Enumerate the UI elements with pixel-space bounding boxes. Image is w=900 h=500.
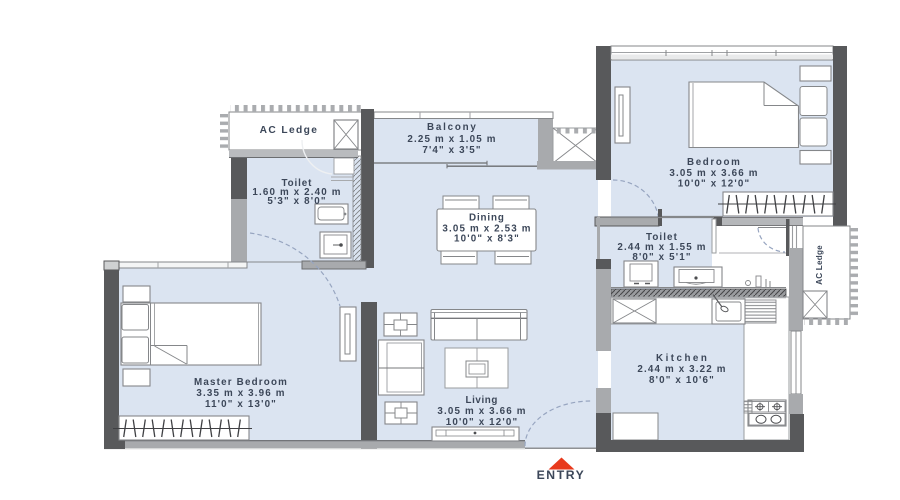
svg-text:Kitchen: Kitchen (656, 353, 708, 364)
svg-text:AC Ledge: AC Ledge (260, 125, 319, 136)
svg-text:5'3" x 8'0": 5'3" x 8'0" (267, 196, 326, 207)
svg-text:8'0" x 10'6": 8'0" x 10'6" (649, 375, 715, 386)
svg-text:3.35 m x 3.96 m: 3.35 m x 3.96 m (196, 388, 285, 399)
svg-text:7'4" x 3'5": 7'4" x 3'5" (422, 145, 481, 156)
svg-text:8'0" x 5'1": 8'0" x 5'1" (632, 252, 691, 263)
svg-text:Balcony: Balcony (427, 122, 477, 133)
svg-text:3.05 m x 3.66 m: 3.05 m x 3.66 m (669, 168, 758, 179)
svg-text:AC Ledge: AC Ledge (815, 245, 824, 285)
svg-text:Master Bedroom: Master Bedroom (194, 377, 288, 388)
svg-text:10'0" x 8'3": 10'0" x 8'3" (454, 234, 520, 245)
svg-text:10'0" x 12'0": 10'0" x 12'0" (678, 179, 750, 190)
svg-text:Living: Living (466, 395, 499, 406)
svg-text:2.25 m x 1.05 m: 2.25 m x 1.05 m (407, 134, 496, 145)
svg-text:2.44 m x 3.22 m: 2.44 m x 3.22 m (637, 364, 726, 375)
svg-text:3.05 m x 3.66 m: 3.05 m x 3.66 m (437, 406, 526, 417)
svg-text:11'0" x 13'0": 11'0" x 13'0" (205, 399, 277, 410)
svg-text:10'0" x 12'0": 10'0" x 12'0" (446, 417, 518, 428)
svg-text:ENTRY: ENTRY (537, 468, 586, 482)
svg-text:Bedroom: Bedroom (687, 157, 741, 168)
svg-text:Dining: Dining (469, 213, 505, 224)
